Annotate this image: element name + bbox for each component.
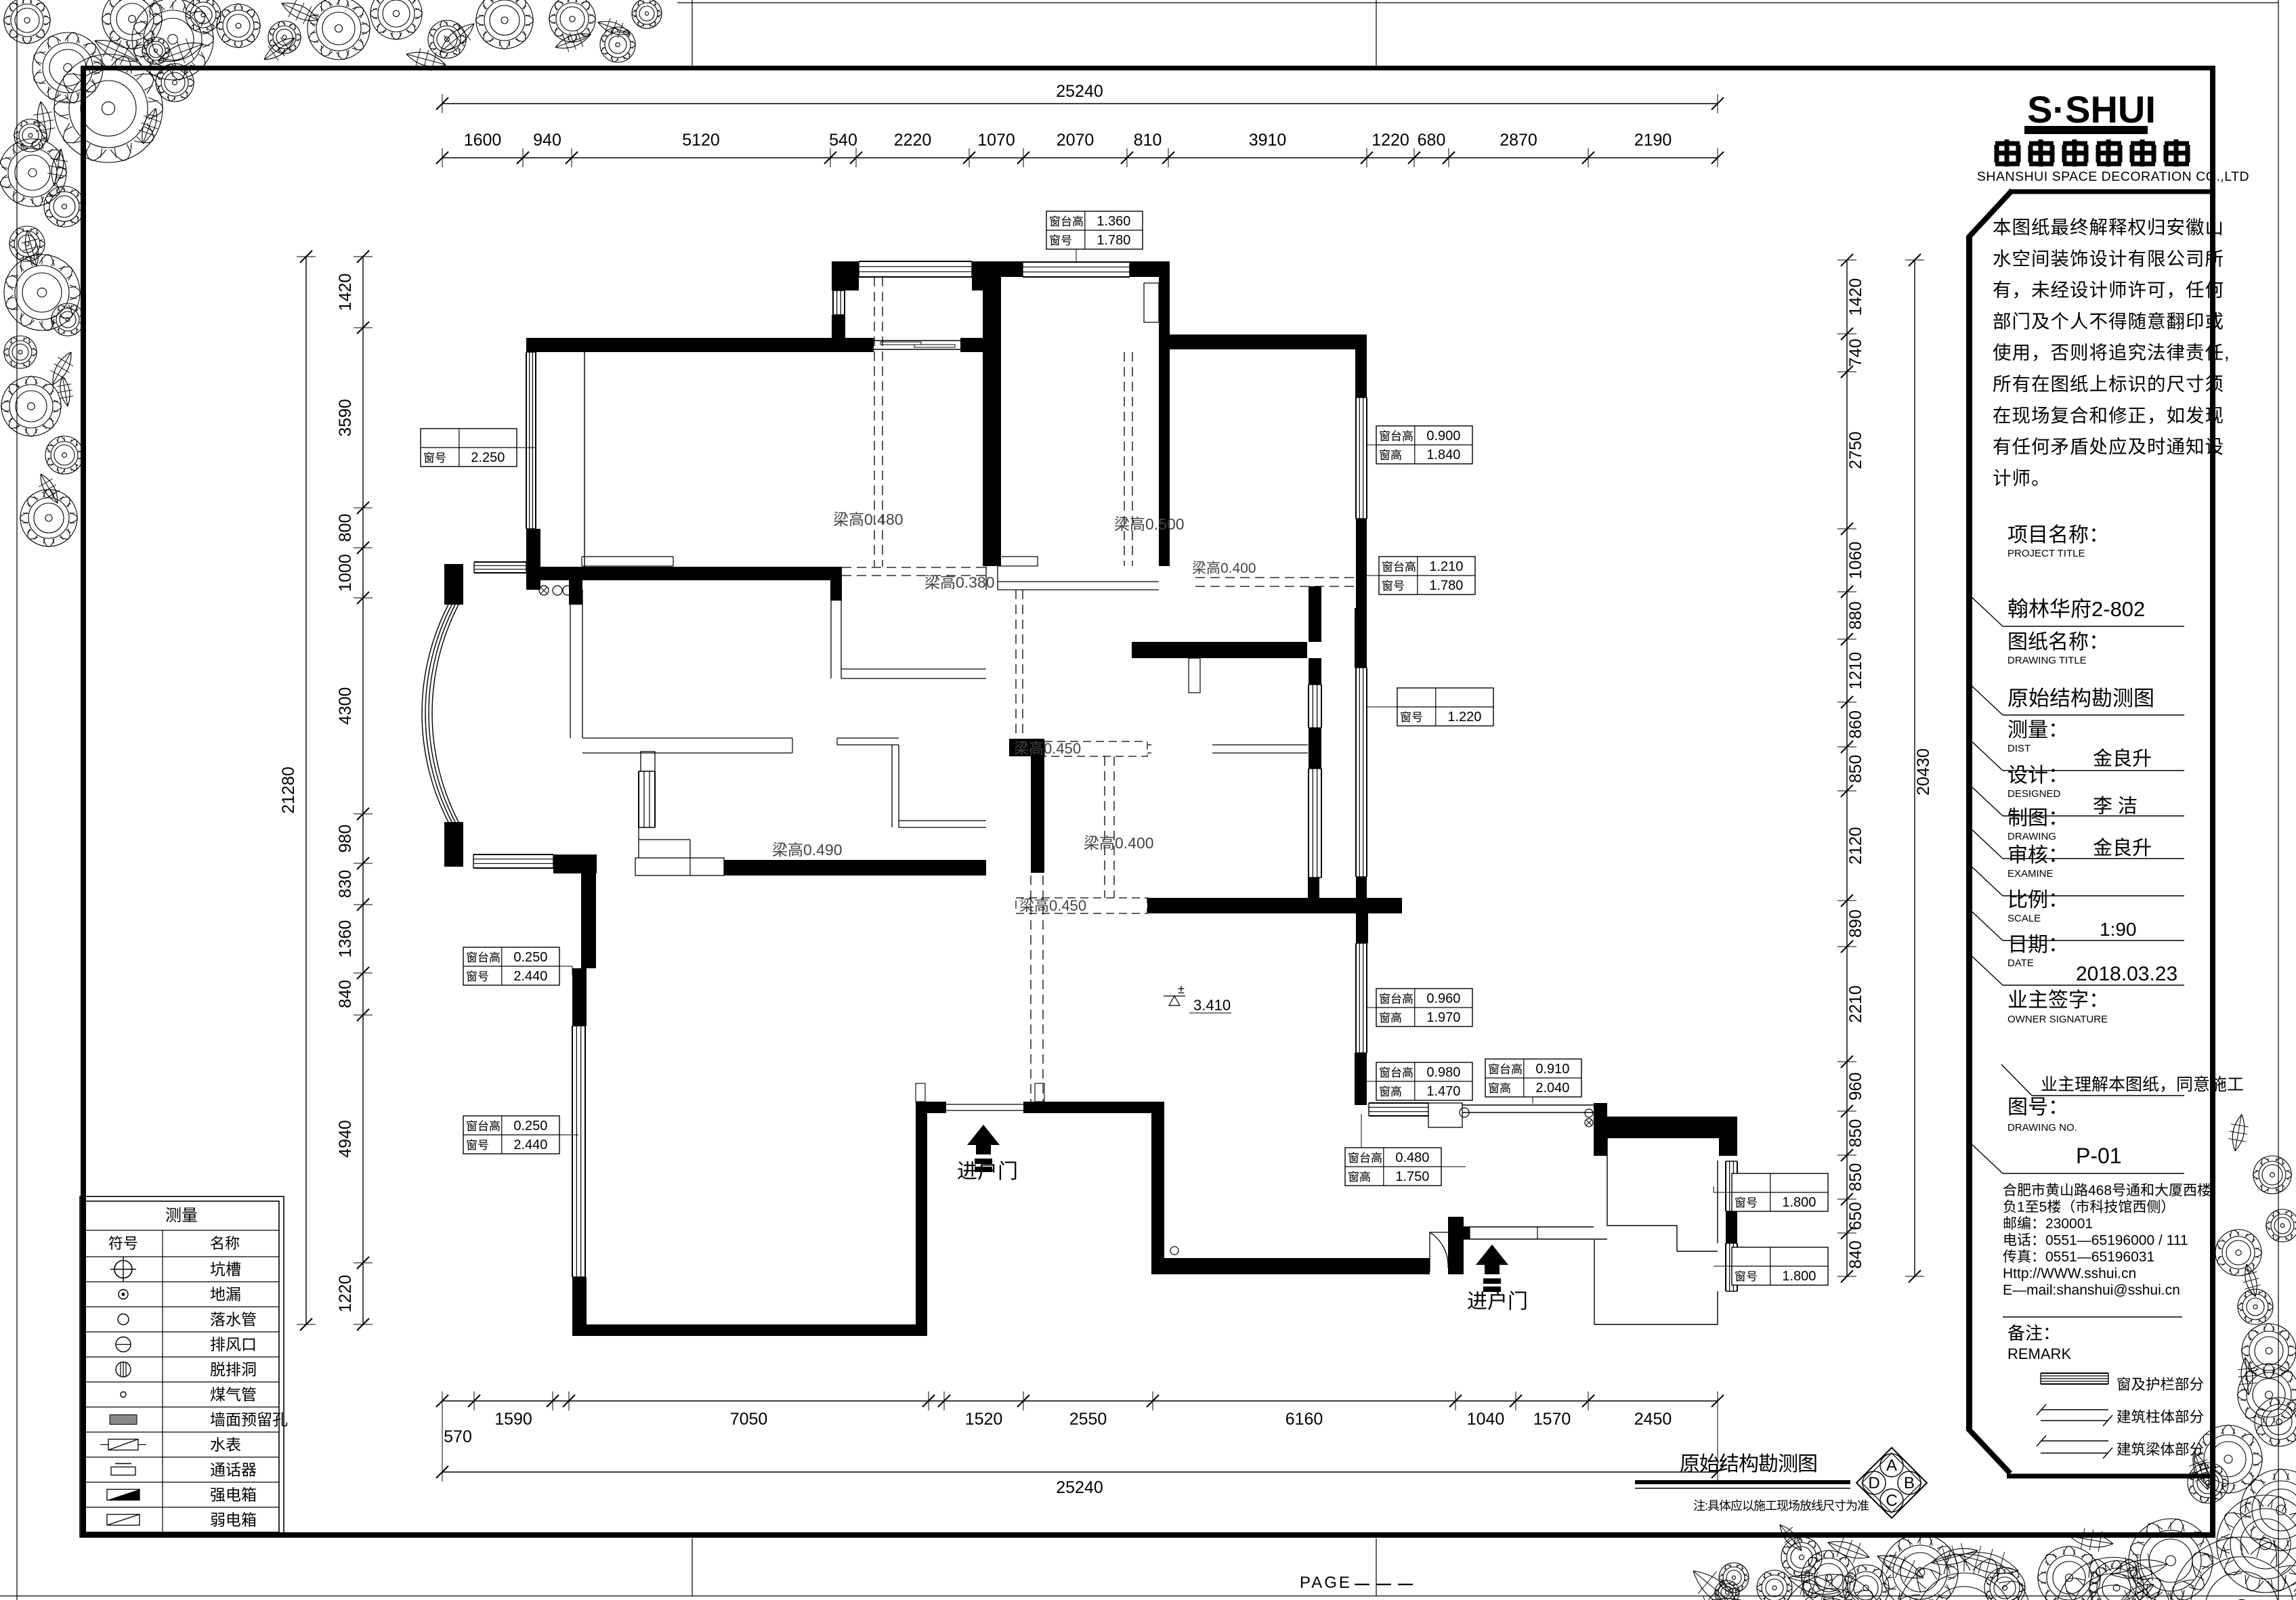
svg-text:1.780: 1.780 [1429,578,1463,593]
svg-text:1.470: 1.470 [1426,1084,1460,1099]
svg-text:窗号: 窗号 [1735,1270,1758,1283]
svg-text:注:具体应以施工现场放线尺寸为准: 注:具体应以施工现场放线尺寸为准 [1693,1499,1869,1513]
svg-text:梁高0.450: 梁高0.450 [1019,897,1086,914]
svg-text:980: 980 [336,825,355,853]
svg-text:脱排洞: 脱排洞 [210,1361,257,1379]
svg-text:窗高: 窗高 [1379,1085,1402,1098]
svg-text:3.410: 3.410 [1193,997,1231,1014]
svg-text:E—mail:shanshui@sshui.cn: E—mail:shanshui@sshui.cn [2003,1282,2180,1298]
svg-text:840: 840 [336,980,355,1008]
svg-text:2120: 2120 [1846,827,1865,865]
svg-text:测量: 测量 [165,1207,198,1225]
svg-text:窗台高: 窗台高 [466,951,501,964]
svg-text:通话器: 通话器 [210,1461,257,1479]
svg-text:邮编：230001: 邮编：230001 [2003,1216,2093,1232]
svg-text:850: 850 [1846,755,1865,783]
svg-text:1520: 1520 [965,1410,1003,1429]
svg-text:±: ± [1178,982,1185,996]
svg-text:窗及护栏部分: 窗及护栏部分 [2117,1377,2204,1393]
svg-text:DESIGNED: DESIGNED [2007,788,2061,800]
svg-text:2870: 2870 [1500,131,1537,150]
svg-text:1210: 1210 [1846,652,1865,690]
svg-text:0.480: 0.480 [1395,1150,1429,1165]
svg-text:850: 850 [1846,1119,1865,1148]
svg-text:部门及个人不得随意翻印或: 部门及个人不得随意翻印或 [1993,311,2224,332]
svg-text:进户门: 进户门 [1467,1291,1528,1313]
svg-text:原始结构勘测图: 原始结构勘测图 [2007,687,2154,710]
svg-text:梁高0.380: 梁高0.380 [924,574,995,591]
svg-text:业主签字：: 业主签字： [2007,989,2109,1012]
svg-text:740: 740 [1846,339,1865,367]
svg-text:翰林华府2-802: 翰林华府2-802 [2007,597,2145,621]
svg-text:窗号: 窗号 [1049,234,1072,247]
svg-text:窗高: 窗高 [1379,1012,1402,1024]
svg-text:REMARK: REMARK [2007,1345,2071,1362]
svg-text:DRAWING TITLE: DRAWING TITLE [2007,655,2087,666]
svg-text:1.360: 1.360 [1097,214,1130,229]
svg-text:2.440: 2.440 [513,969,547,984]
svg-text:进户门: 进户门 [957,1161,1018,1183]
svg-text:水表: 水表 [210,1436,241,1454]
svg-text:窗高: 窗高 [1379,449,1402,462]
svg-text:窗台高: 窗台高 [1379,1066,1413,1079]
svg-text:1:90: 1:90 [2100,919,2137,940]
svg-text:窗号: 窗号 [466,970,489,983]
svg-text:水空间装饰设计有限公司所: 水空间装饰设计有限公司所 [1993,248,2224,269]
svg-text:制图：: 制图： [2007,807,2068,829]
svg-text:所有在图纸上标识的尺寸须: 所有在图纸上标识的尺寸须 [1993,374,2224,395]
svg-text:落水管: 落水管 [210,1311,257,1328]
svg-text:0.910: 0.910 [1535,1062,1569,1077]
svg-text:审核：: 审核： [2007,844,2068,867]
svg-text:1040: 1040 [1467,1410,1505,1429]
svg-text:1060: 1060 [1846,542,1865,580]
svg-text:设计：: 设计： [2007,764,2068,787]
svg-text:梁高0.480: 梁高0.480 [833,511,903,528]
svg-text:窗台高: 窗台高 [1348,1152,1382,1165]
svg-text:0.960: 0.960 [1426,991,1460,1006]
svg-text:比例：: 比例： [2007,889,2068,911]
svg-text:窗台高: 窗台高 [1379,430,1413,443]
svg-text:PROJECT TITLE: PROJECT TITLE [2007,548,2085,559]
svg-text:梁高0.450: 梁高0.450 [1014,740,1081,757]
svg-text:1.800: 1.800 [1782,1269,1816,1284]
svg-text:0.980: 0.980 [1426,1065,1460,1080]
svg-text:弱电箱: 弱电箱 [210,1511,257,1529]
svg-text:4940: 4940 [336,1120,355,1158]
svg-text:梁高0.400: 梁高0.400 [1084,834,1154,852]
svg-text:4300: 4300 [336,687,355,725]
svg-text:窗台高: 窗台高 [1379,993,1413,1006]
svg-text:2.440: 2.440 [513,1138,547,1152]
svg-text:DIST: DIST [2007,743,2031,754]
svg-text:电话：0551—65196000 / 111: 电话：0551—65196000 / 111 [2003,1233,2188,1249]
svg-text:梁高0.500: 梁高0.500 [1114,515,1185,533]
svg-text:2750: 2750 [1846,431,1865,469]
svg-text:890: 890 [1846,909,1865,938]
svg-text:810: 810 [1134,131,1162,150]
svg-text:计师。: 计师。 [1993,467,2051,488]
svg-text:OWNER SIGNATURE: OWNER SIGNATURE [2007,1014,2108,1025]
svg-text:860: 860 [1846,710,1865,739]
svg-text:2550: 2550 [1069,1410,1107,1429]
svg-text:1.220: 1.220 [1447,710,1481,725]
svg-text:日期：: 日期： [2007,934,2068,956]
svg-text:负1至5楼（市科技馆西侧）: 负1至5楼（市科技馆西侧） [2003,1200,2175,1215]
svg-text:570: 570 [444,1427,472,1446]
svg-text:窗号: 窗号 [1400,711,1423,724]
svg-text:梁高0.400: 梁高0.400 [1192,561,1256,576]
svg-text:1590: 1590 [494,1410,532,1429]
svg-text:650: 650 [1846,1202,1865,1230]
svg-text:1.750: 1.750 [1395,1169,1429,1184]
svg-text:墙面预留孔: 墙面预留孔 [210,1411,288,1429]
svg-text:EXAMINE: EXAMINE [2007,868,2054,880]
svg-text:SHANSHUI SPACE DECORATION CO.,: SHANSHUI SPACE DECORATION CO.,LTD [1977,169,2249,184]
svg-text:6160: 6160 [1285,1410,1323,1429]
svg-text:840: 840 [1846,1240,1865,1269]
svg-text:业主理解本图纸，同意施工: 业主理解本图纸，同意施工 [2041,1075,2244,1094]
svg-text:梁高0.490: 梁高0.490 [772,841,843,859]
svg-text:Http://WWW.sshui.cn: Http://WWW.sshui.cn [2003,1266,2136,1282]
svg-text:SCALE: SCALE [2007,913,2041,924]
svg-text:使用，否则将追究法律责任,: 使用，否则将追究法律责任, [1993,342,2230,363]
svg-text:建筑梁体部分: 建筑梁体部分 [2117,1442,2204,1458]
svg-text:3910: 3910 [1249,131,1287,150]
svg-text:原始结构勘测图: 原始结构勘测图 [1680,1453,1817,1475]
svg-text:1000: 1000 [336,554,355,592]
svg-text:2190: 2190 [1634,131,1672,150]
svg-text:传真：0551—65196031: 传真：0551—65196031 [2003,1249,2154,1265]
svg-text:2210: 2210 [1846,985,1865,1023]
svg-text:1070: 1070 [977,131,1015,150]
svg-text:1.780: 1.780 [1097,233,1130,248]
svg-text:PAGE: PAGE [1300,1574,1352,1592]
svg-text:800: 800 [336,514,355,542]
svg-text:金良升: 金良升 [2093,748,2152,770]
svg-text:21280: 21280 [279,766,298,814]
svg-text:1.800: 1.800 [1782,1195,1816,1210]
svg-text:窗号: 窗号 [423,452,446,464]
svg-text:7050: 7050 [730,1410,768,1429]
svg-text:有任何矛盾处应及时通知设: 有任何矛盾处应及时通知设 [1993,436,2224,457]
svg-text:窗台高: 窗台高 [1382,561,1416,574]
svg-text:A: A [1886,1456,1897,1475]
svg-text:2220: 2220 [894,131,932,150]
svg-text:830: 830 [336,870,355,899]
svg-text:合肥市黄山路468号通和大厦西楼: 合肥市黄山路468号通和大厦西楼 [2003,1183,2211,1198]
svg-text:940: 940 [533,131,561,150]
svg-text:2070: 2070 [1057,131,1094,150]
svg-text:C: C [1886,1492,1897,1510]
svg-text:窗台高: 窗台高 [1049,215,1084,228]
svg-text:排风口: 排风口 [210,1336,257,1354]
svg-text:B: B [1904,1474,1915,1492]
svg-text:在现场复合和修正，如发现: 在现场复合和修正，如发现 [1993,405,2224,426]
svg-text:有，未经设计师许可，任何: 有，未经设计师许可，任何 [1993,280,2224,301]
svg-text:2.040: 2.040 [1535,1081,1569,1096]
svg-text:1.210: 1.210 [1429,559,1463,574]
svg-text:符号: 符号 [108,1235,138,1252]
svg-text:窗号: 窗号 [1735,1196,1758,1209]
svg-text:测量：: 测量： [2007,719,2068,741]
svg-text:0.250: 0.250 [513,950,547,965]
svg-text:D: D [1868,1474,1879,1492]
svg-text:图纸名称：: 图纸名称： [2007,631,2109,653]
svg-text:本图纸最终解释权归安徽山: 本图纸最终解释权归安徽山 [1993,217,2224,238]
svg-text:3590: 3590 [336,399,355,437]
svg-text:窗号: 窗号 [1382,580,1405,592]
svg-text:1600: 1600 [464,131,502,150]
svg-text:DATE: DATE [2007,957,2034,969]
svg-text:图号：: 图号： [2007,1096,2068,1119]
svg-text:1420: 1420 [336,274,355,311]
svg-text:1220: 1220 [336,1275,355,1313]
svg-text:窗号: 窗号 [466,1139,489,1152]
svg-text:DRAWING: DRAWING [2007,831,2056,842]
svg-text:1420: 1420 [1846,278,1865,316]
svg-text:2.250: 2.250 [471,450,505,465]
svg-text:项目名称：: 项目名称： [2007,524,2109,546]
svg-text:0.250: 0.250 [513,1119,547,1133]
svg-text:窗高: 窗高 [1348,1171,1371,1184]
svg-text:强电箱: 强电箱 [210,1486,257,1504]
svg-text:1570: 1570 [1533,1410,1571,1429]
svg-text:建筑柱体部分: 建筑柱体部分 [2117,1409,2204,1425]
svg-text:1.970: 1.970 [1426,1010,1460,1025]
svg-text:窗高: 窗高 [1488,1082,1511,1095]
svg-text:2018.03.23: 2018.03.23 [2076,963,2177,985]
svg-text:1.840: 1.840 [1426,448,1460,462]
svg-text:20430: 20430 [1914,748,1933,796]
svg-text:煤气管: 煤气管 [210,1386,257,1404]
svg-text:25240: 25240 [1056,82,1103,101]
svg-text:680: 680 [1418,131,1446,150]
svg-text:25240: 25240 [1056,1478,1103,1497]
svg-text:P-01: P-01 [2076,1144,2122,1168]
svg-text:5120: 5120 [682,131,720,150]
svg-text:540: 540 [829,131,857,150]
svg-text:1360: 1360 [336,920,355,958]
svg-text:880: 880 [1846,601,1865,630]
svg-text:1220: 1220 [1372,131,1409,150]
svg-text:金良升: 金良升 [2093,837,2152,859]
svg-text:850: 850 [1846,1163,1865,1192]
svg-text:2450: 2450 [1634,1410,1672,1429]
svg-text:窗台高: 窗台高 [1488,1063,1523,1076]
svg-text:S·SHUI: S·SHUI [2027,88,2156,131]
svg-text:960: 960 [1846,1073,1865,1101]
svg-text:0.900: 0.900 [1426,429,1460,444]
svg-text:李 洁: 李 洁 [2093,795,2138,817]
svg-text:坑槽: 坑槽 [210,1261,241,1278]
svg-text:窗台高: 窗台高 [466,1120,501,1133]
svg-text:DRAWING NO.: DRAWING NO. [2007,1122,2077,1133]
svg-text:地漏: 地漏 [210,1286,241,1303]
svg-text:备注：: 备注： [2007,1323,2060,1343]
svg-text:名称: 名称 [210,1235,240,1252]
